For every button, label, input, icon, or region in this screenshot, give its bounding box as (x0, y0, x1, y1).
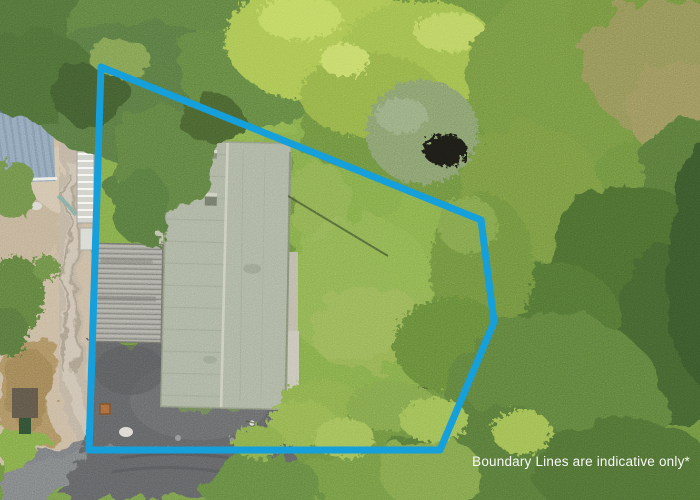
photo-caption: Boundary Lines are indicative only* (472, 454, 690, 469)
aerial-photo: Boundary Lines are indicative only* (0, 0, 700, 500)
aerial-photo-canvas: Boundary Lines are indicative only* (0, 0, 700, 500)
grain-overlay (0, 0, 700, 500)
